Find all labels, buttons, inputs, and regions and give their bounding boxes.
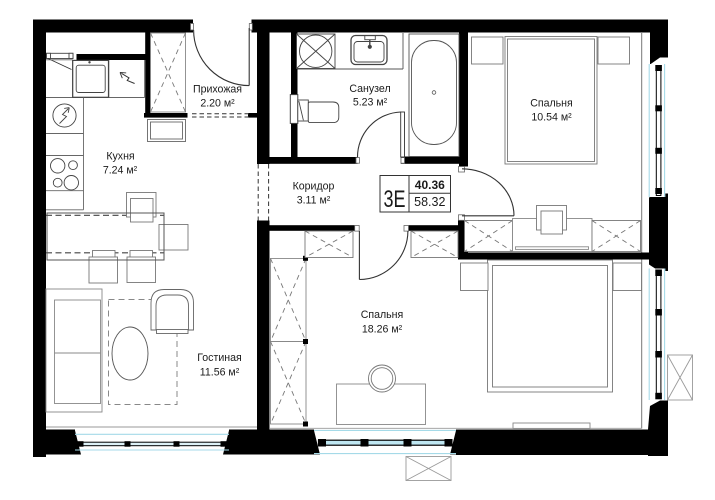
svg-text:3.11 м²: 3.11 м²: [297, 195, 331, 207]
svg-text:5.23 м²: 5.23 м²: [353, 97, 388, 109]
svg-text:Спальня: Спальня: [530, 98, 573, 110]
svg-text:3Е: 3Е: [384, 186, 406, 213]
svg-text:Спальня: Спальня: [361, 309, 404, 321]
svg-text:Гостиная: Гостиная: [197, 352, 241, 364]
svg-text:58.32: 58.32: [414, 195, 445, 209]
svg-text:7.24 м²: 7.24 м²: [103, 165, 138, 177]
svg-text:2.20 м²: 2.20 м²: [200, 98, 235, 110]
svg-text:Кухня: Кухня: [106, 151, 134, 163]
svg-text:Прихожая: Прихожая: [193, 84, 242, 96]
svg-text:40.36: 40.36: [415, 178, 445, 192]
svg-text:Санузел: Санузел: [349, 83, 390, 95]
svg-text:10.54 м²: 10.54 м²: [531, 112, 572, 124]
svg-text:18.26 м²: 18.26 м²: [362, 324, 403, 336]
svg-text:11.56 м²: 11.56 м²: [200, 367, 240, 379]
svg-text:Коридор: Коридор: [293, 181, 335, 193]
